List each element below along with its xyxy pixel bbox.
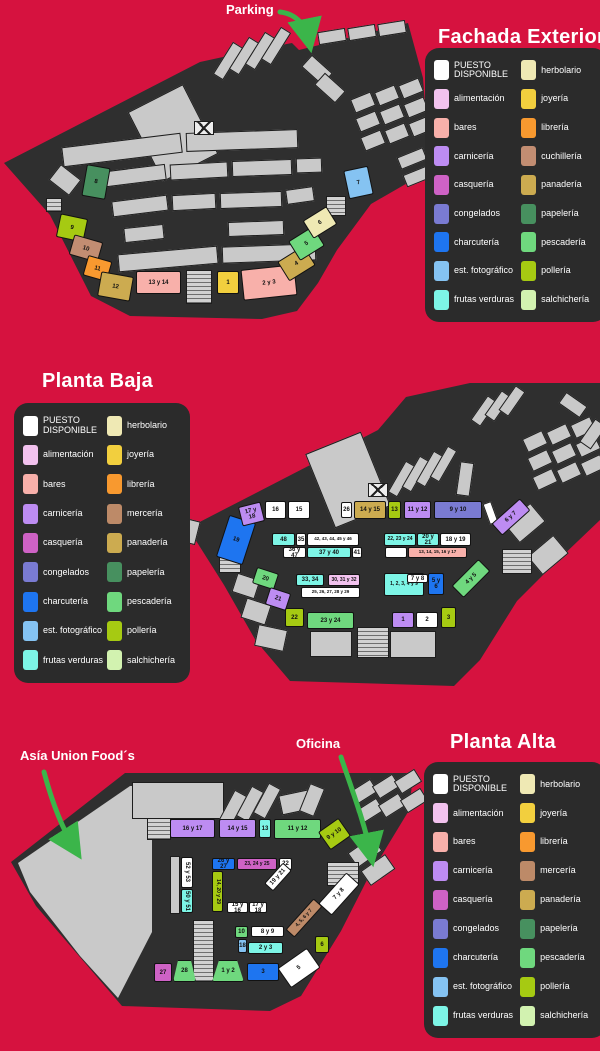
legend-swatch-disponible <box>23 416 38 436</box>
stall-fachada-1: 1 <box>217 271 239 294</box>
legend-swatch-polleria <box>520 977 535 997</box>
room <box>170 161 229 180</box>
legend-label-congelados: congelados <box>43 568 89 577</box>
stall-alta-2-y-3: 2 y 3 <box>248 942 283 954</box>
legend-planta-alta: PUESTO DISPONIBLEherbolarioalimentaciónj… <box>424 762 600 1038</box>
legend-label-salchicheria: salchichería <box>541 295 589 304</box>
legend-item-polleria: pollería <box>107 616 187 645</box>
stall-baja-13: 13 <box>388 501 401 519</box>
legend-label-casqueria: casquería <box>43 538 83 547</box>
legend-label-casqueria: casquería <box>454 180 494 189</box>
legend-item-congelados: congelados <box>433 914 520 943</box>
legend-swatch-disponible <box>433 774 448 794</box>
room <box>172 193 217 211</box>
legend-label-polleria: pollería <box>127 626 157 635</box>
legend-item-libreria: librería <box>520 828 600 857</box>
legend-swatch-casqueria <box>433 890 448 910</box>
legend-swatch-charcuteria <box>23 592 38 612</box>
legend-item-alimentacion: alimentación <box>433 799 520 828</box>
legend-swatch-carniceria <box>23 504 38 524</box>
legend-item-cuchilleria: cuchillería <box>521 142 600 171</box>
stairs-icon <box>193 920 214 982</box>
stall-alta-23-24-y-25: 23, 24 y 25 <box>237 858 277 870</box>
legend-label-herbolario: herbolario <box>540 780 580 789</box>
stall-alta-16-y-17: 16 y 17 <box>170 819 215 838</box>
room <box>310 631 352 657</box>
stall-baja-22-23-y-24: 22, 23 y 24 <box>384 533 416 546</box>
legend-swatch-panaderia <box>520 890 535 910</box>
stall-baja-36-y-47: 36 y 47 <box>283 547 306 558</box>
room <box>232 159 293 177</box>
legend-label-panaderia: panadería <box>540 895 581 904</box>
legend-item-est_fotografico: est. fotográfico <box>23 616 107 645</box>
legend-item-charcuteria: charcutería <box>434 228 521 257</box>
stall-alta-14-20-y-29: 14, 20 y 29 <box>212 871 223 912</box>
legend-swatch-bares <box>433 832 448 852</box>
parking-label: Parking <box>226 2 274 17</box>
legend-label-charcuteria: charcutería <box>43 597 88 606</box>
legend-label-herbolario: herbolario <box>127 421 167 430</box>
legend-label-panaderia: panadería <box>541 180 582 189</box>
legend-label-est_fotografico: est. fotográfico <box>43 626 102 635</box>
stall-baja-18-y-19: 18 y 19 <box>440 533 471 546</box>
stall-alta-8-y-9: 8 y 9 <box>251 926 284 937</box>
legend-swatch-charcuteria <box>434 232 449 252</box>
legend-item-merceria: mercería <box>520 857 600 886</box>
legend-item-casqueria: casquería <box>434 171 521 200</box>
legend-swatch-herbolario <box>520 774 535 794</box>
legend-label-libreria: librería <box>540 837 568 846</box>
legend-label-carniceria: carnicería <box>454 152 494 161</box>
legend-item-polleria: pollería <box>520 972 600 1001</box>
legend-swatch-est_fotografico <box>23 621 38 641</box>
legend-swatch-congelados <box>433 919 448 939</box>
legend-label-bares: bares <box>454 123 477 132</box>
legend-swatch-joyeria <box>520 803 535 823</box>
legend-item-est_fotografico: est. fotográfico <box>433 972 520 1001</box>
legend-swatch-charcuteria <box>433 948 448 968</box>
legend-item-panaderia: panadería <box>107 528 187 557</box>
legend-item-charcuteria: charcutería <box>23 587 107 616</box>
legend-swatch-libreria <box>107 474 122 494</box>
stall-alta-10: 10 <box>235 926 248 938</box>
stall-baja-13-14-15-16-y-17: 13, 14, 15, 16 y 17 <box>408 547 467 558</box>
legend-swatch-congelados <box>434 204 449 224</box>
legend-label-frutas: frutas verduras <box>454 295 514 304</box>
legend-label-bares: bares <box>453 837 476 846</box>
legend-label-pescaderia: pescadería <box>127 597 172 606</box>
legend-swatch-alimentacion <box>434 89 449 109</box>
legend-label-congelados: congelados <box>454 209 500 218</box>
legend-item-libreria: librería <box>521 113 600 142</box>
stall-baja-9-y-10: 9 y 10 <box>434 501 482 519</box>
legend-swatch-carniceria <box>434 146 449 166</box>
stairs-icon <box>357 627 389 658</box>
legend-swatch-bares <box>23 474 38 494</box>
legend-label-disponible: PUESTO DISPONIBLE <box>43 416 107 435</box>
stall-baja-20-y-21: 20 y 21 <box>417 533 439 546</box>
legend-item-disponible: PUESTO DISPONIBLE <box>23 411 107 440</box>
legend-label-panaderia: panadería <box>127 538 168 547</box>
legend-swatch-frutas <box>433 1006 448 1026</box>
room <box>132 782 224 819</box>
legend-label-polleria: pollería <box>540 982 570 991</box>
legend-item-disponible: PUESTO DISPONIBLE <box>433 770 520 799</box>
legend-item-salchicheria: salchichería <box>107 646 187 675</box>
stall-alta-17-y-18: 17 y 18 <box>249 902 267 913</box>
legend-item-pescaderia: pescadería <box>520 943 600 972</box>
legend-item-frutas: frutas verduras <box>434 285 521 314</box>
legend-swatch-disponible <box>434 60 449 80</box>
stall-alta-18: 18 <box>238 939 247 953</box>
stall-baja-25-26-27-28-y-29: 25, 26, 27, 28 y 29 <box>301 587 360 598</box>
legend-item-panaderia: panadería <box>521 171 600 200</box>
legend-label-salchicheria: salchichería <box>127 656 175 665</box>
legend-label-merceria: mercería <box>127 509 163 518</box>
legend-item-joyeria: joyería <box>107 440 187 469</box>
stall-baja-30-31-y-32: 30, 31 y 32 <box>328 574 360 586</box>
stall-baja-37-y-40: 37 y 40 <box>307 547 351 558</box>
stall-baja-2: 2 <box>416 612 438 628</box>
stall-baja-7-y-8: 7 y 8 <box>407 574 428 583</box>
legend-swatch-papeleria <box>520 919 535 939</box>
stairs-icon <box>46 198 62 212</box>
legend-label-carniceria: carnicería <box>43 509 83 518</box>
legend-item-papeleria: papelería <box>107 558 187 587</box>
room <box>390 631 436 658</box>
legend-swatch-libreria <box>521 118 536 138</box>
legend-label-frutas: frutas verduras <box>453 1011 513 1020</box>
legend-label-frutas: frutas verduras <box>43 656 103 665</box>
stall-baja-11-y-12: 11 y 12 <box>404 501 431 519</box>
market-directory-poster: { "page": { "background": "#d6123f", "bu… <box>0 0 600 1051</box>
stall-baja-blank <box>385 547 407 558</box>
stall-alta-26-y-27: 26 y 27 <box>212 858 235 870</box>
stairs-icon <box>502 549 532 574</box>
stairs-icon <box>186 270 212 304</box>
room <box>228 220 284 237</box>
asia-union-foods-label: Asía Union Food´s <box>20 748 135 763</box>
legend-swatch-salchicheria <box>521 290 536 310</box>
legend-label-merceria: mercería <box>540 866 576 875</box>
legend-swatch-polleria <box>107 621 122 641</box>
legend-swatch-frutas <box>23 650 38 670</box>
legend-label-carniceria: carnicería <box>453 866 493 875</box>
oficina-label: Oficina <box>296 736 340 751</box>
stall-baja-48: 48 <box>272 533 295 546</box>
legend-label-herbolario: herbolario <box>541 66 581 75</box>
legend-item-joyeria: joyería <box>521 85 600 114</box>
legend-item-carniceria: carnicería <box>23 499 107 528</box>
stall-alta-6: 6 <box>315 936 329 953</box>
stall-alta-11-y-12: 11 y 12 <box>274 819 321 839</box>
legend-item-polleria: pollería <box>521 257 600 286</box>
room <box>170 856 180 914</box>
stall-baja-42-43-44-45-y-46: 42, 43, 44, 45 y 46 <box>307 533 359 546</box>
legend-label-casqueria: casquería <box>453 895 493 904</box>
stairs-icon <box>147 818 171 840</box>
legend-swatch-est_fotografico <box>433 977 448 997</box>
stall-alta-50-y-51: 50 y 51 <box>181 889 193 913</box>
legend-label-est_fotografico: est. fotográfico <box>453 982 512 991</box>
legend-item-carniceria: carnicería <box>433 857 520 886</box>
legend-item-bares: bares <box>434 113 521 142</box>
legend-swatch-salchicheria <box>520 1006 535 1026</box>
elevator-icon <box>368 483 388 497</box>
legend-swatch-frutas <box>434 290 449 310</box>
legend-label-salchicheria: salchichería <box>540 1011 588 1020</box>
legend-item-papeleria: papelería <box>520 914 600 943</box>
stall-baja-35: 35 <box>296 533 306 546</box>
legend-swatch-casqueria <box>434 175 449 195</box>
legend-item-alimentacion: alimentación <box>23 440 107 469</box>
legend-label-pescaderia: pescadería <box>541 238 586 247</box>
legend-label-bares: bares <box>43 480 66 489</box>
legend-item-herbolario: herbolario <box>521 56 600 85</box>
stall-baja-33-34: 33, 34 <box>296 574 324 586</box>
stall-baja-14-y-15: 14 y 15 <box>354 501 386 519</box>
legend-label-alimentacion: alimentación <box>43 450 94 459</box>
legend-item-pescaderia: pescadería <box>521 228 600 257</box>
legend-item-casqueria: casquería <box>433 886 520 915</box>
legend-item-frutas: frutas verduras <box>433 1001 520 1030</box>
stall-baja-26: 26 <box>341 502 352 518</box>
legend-label-disponible: PUESTO DISPONIBLE <box>454 61 521 80</box>
legend-item-congelados: congelados <box>434 199 521 228</box>
legend-swatch-panaderia <box>521 175 536 195</box>
stall-baja-22: 22 <box>285 608 304 627</box>
legend-swatch-congelados <box>23 562 38 582</box>
legend-item-disponible: PUESTO DISPONIBLE <box>434 56 521 85</box>
stall-alta-3: 3 <box>247 963 279 981</box>
legend-label-alimentacion: alimentación <box>454 94 505 103</box>
legend-swatch-papeleria <box>107 562 122 582</box>
legend-label-libreria: librería <box>127 480 155 489</box>
legend-label-alimentacion: alimentación <box>453 809 504 818</box>
legend-label-joyeria: joyería <box>540 809 567 818</box>
legend-item-charcuteria: charcutería <box>433 943 520 972</box>
stall-alta-13: 13 <box>259 819 271 838</box>
legend-swatch-carniceria <box>433 861 448 881</box>
legend-label-libreria: librería <box>541 123 569 132</box>
legend-label-congelados: congelados <box>453 924 499 933</box>
legend-label-charcuteria: charcutería <box>454 238 499 247</box>
stall-alta-14-y-15: 14 y 15 <box>219 819 256 838</box>
legend-swatch-pescaderia <box>521 232 536 252</box>
legend-fachada: PUESTO DISPONIBLEherbolarioalimentaciónj… <box>425 48 600 322</box>
legend-item-merceria: mercería <box>107 499 187 528</box>
legend-label-pescaderia: pescadería <box>540 953 585 962</box>
legend-swatch-merceria <box>520 861 535 881</box>
legend-label-charcuteria: charcutería <box>453 953 498 962</box>
stall-baja-23-y-24: 23 y 24 <box>307 612 354 629</box>
section-title-fachada: Fachada Exterior <box>438 26 598 49</box>
stall-baja-3: 3 <box>441 607 456 628</box>
legend-item-carniceria: carnicería <box>434 142 521 171</box>
legend-label-disponible: PUESTO DISPONIBLE <box>453 775 520 794</box>
legend-swatch-pescaderia <box>107 592 122 612</box>
legend-swatch-pescaderia <box>520 948 535 968</box>
legend-swatch-casqueria <box>23 533 38 553</box>
legend-swatch-panaderia <box>107 533 122 553</box>
stall-alta-15-y-16: 15 y 16 <box>227 902 248 913</box>
legend-label-papeleria: papelería <box>541 209 579 218</box>
legend-item-congelados: congelados <box>23 558 107 587</box>
legend-swatch-est_fotografico <box>434 261 449 281</box>
legend-item-panaderia: panadería <box>520 886 600 915</box>
legend-item-salchicheria: salchichería <box>521 285 600 314</box>
legend-label-est_fotografico: est. fotográfico <box>454 266 513 275</box>
stall-baja-1: 1 <box>392 612 414 628</box>
legend-item-alimentacion: alimentación <box>434 85 521 114</box>
legend-swatch-herbolario <box>521 60 536 80</box>
legend-swatch-papeleria <box>521 204 536 224</box>
legend-planta-baja: PUESTO DISPONIBLEherbolarioalimentaciónj… <box>14 403 190 683</box>
legend-swatch-joyeria <box>521 89 536 109</box>
legend-swatch-libreria <box>520 832 535 852</box>
legend-item-joyeria: joyería <box>520 799 600 828</box>
legend-swatch-cuchilleria <box>521 146 536 166</box>
legend-item-herbolario: herbolario <box>520 770 600 799</box>
legend-item-frutas: frutas verduras <box>23 646 107 675</box>
legend-label-papeleria: papelería <box>540 924 578 933</box>
legend-label-joyeria: joyería <box>541 94 568 103</box>
section-title-planta-baja: Planta Baja <box>40 370 155 393</box>
legend-item-pescaderia: pescadería <box>107 587 187 616</box>
legend-item-salchicheria: salchichería <box>520 1001 600 1030</box>
stall-alta-52-y-53: 52 y 53 <box>181 857 193 888</box>
legend-item-casqueria: casquería <box>23 528 107 557</box>
legend-swatch-joyeria <box>107 445 122 465</box>
legend-label-polleria: pollería <box>541 266 571 275</box>
legend-label-cuchilleria: cuchillería <box>541 152 582 161</box>
section-title-planta-alta: Planta Alta <box>433 731 573 754</box>
legend-swatch-herbolario <box>107 416 122 436</box>
legend-item-herbolario: herbolario <box>107 411 187 440</box>
stall-baja-41: 41 <box>352 547 362 558</box>
legend-swatch-polleria <box>521 261 536 281</box>
legend-item-bares: bares <box>433 828 520 857</box>
stall-baja-5-y-6: 5 y 6 <box>428 573 444 595</box>
legend-swatch-bares <box>434 118 449 138</box>
elevator-icon <box>194 121 214 135</box>
stall-baja-15: 15 <box>288 501 310 519</box>
legend-label-papeleria: papelería <box>127 568 165 577</box>
stall-fachada-13-y-14: 13 y 14 <box>136 271 181 294</box>
stall-alta-27: 27 <box>154 963 172 982</box>
legend-swatch-alimentacion <box>23 445 38 465</box>
legend-item-est_fotografico: est. fotográfico <box>434 257 521 286</box>
stall-baja-16: 16 <box>265 501 286 519</box>
room <box>296 158 323 174</box>
room <box>220 191 283 209</box>
legend-item-libreria: librería <box>107 470 187 499</box>
legend-swatch-alimentacion <box>433 803 448 823</box>
legend-item-bares: bares <box>23 470 107 499</box>
room <box>254 624 288 652</box>
legend-item-papeleria: papelería <box>521 199 600 228</box>
legend-swatch-salchicheria <box>107 650 122 670</box>
legend-swatch-merceria <box>107 504 122 524</box>
legend-label-joyeria: joyería <box>127 450 154 459</box>
